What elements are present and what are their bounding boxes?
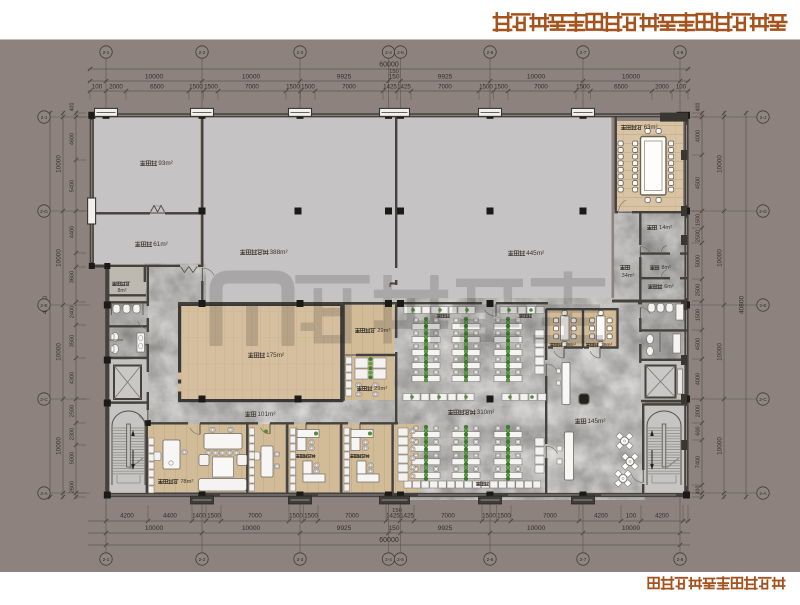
svg-text:2-1: 2-1 bbox=[103, 557, 110, 562]
svg-text:10000: 10000 bbox=[527, 525, 546, 532]
svg-text:2-J: 2-J bbox=[41, 115, 47, 120]
svg-text:10000: 10000 bbox=[242, 74, 261, 81]
svg-text:10000: 10000 bbox=[717, 437, 724, 455]
svg-text:2-E: 2-E bbox=[759, 303, 766, 308]
svg-text:3500: 3500 bbox=[70, 335, 76, 347]
svg-text:100: 100 bbox=[626, 513, 637, 520]
svg-text:7000: 7000 bbox=[345, 513, 359, 520]
svg-text:10000: 10000 bbox=[242, 525, 261, 532]
svg-text:4000: 4000 bbox=[696, 130, 702, 142]
svg-text:1500: 1500 bbox=[301, 84, 315, 91]
svg-text:1500: 1500 bbox=[207, 513, 221, 520]
svg-text:2-2: 2-2 bbox=[199, 50, 206, 55]
svg-text:2-7: 2-7 bbox=[580, 557, 587, 562]
svg-text:4400: 4400 bbox=[163, 513, 177, 520]
svg-text:10000: 10000 bbox=[717, 343, 724, 361]
svg-text:5000: 5000 bbox=[696, 255, 702, 267]
svg-text:63m²: 63m² bbox=[644, 125, 658, 131]
svg-text:2-C: 2-C bbox=[759, 397, 767, 402]
svg-text:5000: 5000 bbox=[70, 452, 76, 464]
svg-text:60000: 60000 bbox=[379, 537, 399, 544]
svg-text:7000: 7000 bbox=[438, 84, 452, 91]
svg-text:2-3: 2-3 bbox=[297, 557, 304, 562]
svg-text:40800: 40800 bbox=[739, 296, 746, 315]
svg-text:93m²: 93m² bbox=[158, 160, 173, 167]
svg-text:18m²: 18m² bbox=[565, 342, 576, 348]
svg-text:145m²: 145m² bbox=[587, 418, 605, 425]
svg-text:445m²: 445m² bbox=[526, 250, 544, 257]
svg-text:2-5: 2-5 bbox=[397, 557, 404, 562]
svg-text:9925: 9925 bbox=[438, 74, 453, 81]
svg-text:1500: 1500 bbox=[204, 84, 218, 91]
svg-text:7000: 7000 bbox=[543, 513, 557, 520]
svg-text:1500: 1500 bbox=[696, 309, 702, 321]
svg-text:7000: 7000 bbox=[534, 84, 548, 91]
svg-text:2-A: 2-A bbox=[40, 491, 48, 496]
svg-text:2-4: 2-4 bbox=[385, 50, 392, 55]
svg-text:1500: 1500 bbox=[497, 513, 511, 520]
svg-text:388m²: 388m² bbox=[269, 249, 287, 256]
svg-text:2-3: 2-3 bbox=[297, 50, 304, 55]
svg-text:2500: 2500 bbox=[696, 230, 702, 242]
svg-text:2-4: 2-4 bbox=[385, 557, 392, 562]
svg-text:1500: 1500 bbox=[479, 84, 493, 91]
svg-text:60000: 60000 bbox=[379, 62, 399, 69]
svg-text:6500: 6500 bbox=[150, 84, 164, 91]
svg-text:2-J: 2-J bbox=[760, 115, 766, 120]
svg-text:2-1: 2-1 bbox=[103, 50, 110, 55]
svg-text:2500: 2500 bbox=[70, 405, 76, 417]
svg-text:18m²: 18m² bbox=[601, 342, 612, 348]
svg-text:7400: 7400 bbox=[696, 456, 702, 468]
svg-text:600: 600 bbox=[696, 426, 702, 435]
svg-text:1500: 1500 bbox=[696, 214, 702, 226]
svg-text:150: 150 bbox=[388, 525, 399, 532]
svg-text:400: 400 bbox=[696, 103, 702, 112]
svg-text:2-5: 2-5 bbox=[397, 50, 404, 55]
svg-text:34m²: 34m² bbox=[622, 273, 635, 279]
svg-text:150: 150 bbox=[389, 69, 399, 75]
svg-text:10000: 10000 bbox=[56, 249, 63, 267]
svg-text:78m²: 78m² bbox=[180, 479, 193, 485]
svg-text:1425: 1425 bbox=[397, 84, 411, 91]
svg-text:10000: 10000 bbox=[145, 525, 164, 532]
svg-text:8m²: 8m² bbox=[662, 265, 671, 271]
svg-text:1500: 1500 bbox=[576, 84, 590, 91]
svg-text:6500: 6500 bbox=[614, 84, 628, 91]
svg-text:2-G: 2-G bbox=[40, 209, 48, 214]
svg-text:2600: 2600 bbox=[70, 481, 76, 493]
svg-text:101m²: 101m² bbox=[257, 411, 275, 418]
svg-text:1425: 1425 bbox=[400, 513, 414, 520]
svg-text:6m²: 6m² bbox=[664, 284, 673, 290]
svg-text:7000: 7000 bbox=[248, 513, 262, 520]
svg-text:4200: 4200 bbox=[594, 513, 608, 520]
svg-text:4400: 4400 bbox=[70, 226, 76, 238]
svg-text:14m²: 14m² bbox=[659, 225, 672, 231]
svg-text:2000: 2000 bbox=[655, 84, 669, 91]
svg-text:2-6: 2-6 bbox=[487, 557, 494, 562]
svg-text:2-7: 2-7 bbox=[580, 50, 587, 55]
svg-text:7000: 7000 bbox=[441, 513, 455, 520]
svg-text:10000: 10000 bbox=[56, 437, 63, 455]
svg-text:1500: 1500 bbox=[494, 84, 508, 91]
svg-text:4300: 4300 bbox=[70, 372, 76, 384]
svg-text:10000: 10000 bbox=[56, 343, 63, 361]
svg-text:2000: 2000 bbox=[696, 405, 702, 417]
svg-text:4200: 4200 bbox=[655, 513, 669, 520]
svg-text:2-E: 2-E bbox=[40, 303, 47, 308]
svg-text:10000: 10000 bbox=[717, 155, 724, 173]
svg-text:2-8: 2-8 bbox=[677, 557, 684, 562]
svg-text:9925: 9925 bbox=[438, 525, 453, 532]
svg-text:1500: 1500 bbox=[286, 84, 300, 91]
svg-text:10000: 10000 bbox=[622, 74, 641, 81]
svg-text:29m²: 29m² bbox=[377, 328, 390, 334]
svg-text:1500: 1500 bbox=[304, 513, 318, 520]
svg-text:2-G: 2-G bbox=[759, 209, 767, 214]
svg-text:2500: 2500 bbox=[696, 284, 702, 296]
svg-text:2-2: 2-2 bbox=[199, 557, 206, 562]
svg-text:10000: 10000 bbox=[622, 525, 641, 532]
svg-text:1500: 1500 bbox=[482, 513, 496, 520]
svg-text:1425: 1425 bbox=[383, 84, 397, 91]
svg-text:61m²: 61m² bbox=[153, 241, 168, 248]
svg-text:2000: 2000 bbox=[109, 84, 123, 91]
svg-text:10000: 10000 bbox=[56, 155, 63, 173]
svg-text:5400: 5400 bbox=[70, 180, 76, 192]
svg-text:4500: 4500 bbox=[696, 338, 702, 350]
svg-text:10000: 10000 bbox=[145, 74, 164, 81]
svg-text:10000: 10000 bbox=[527, 74, 546, 81]
svg-text:2-C: 2-C bbox=[40, 397, 48, 402]
svg-text:9925: 9925 bbox=[337, 525, 352, 532]
svg-text:2-A: 2-A bbox=[759, 491, 767, 496]
svg-text:10000: 10000 bbox=[717, 249, 724, 267]
svg-text:2-6: 2-6 bbox=[487, 50, 494, 55]
svg-text:3600: 3600 bbox=[70, 271, 76, 283]
svg-text:2400: 2400 bbox=[70, 306, 76, 318]
svg-text:175m²: 175m² bbox=[266, 352, 284, 359]
svg-text:8m²: 8m² bbox=[118, 288, 127, 294]
svg-text:4500: 4500 bbox=[696, 177, 702, 189]
svg-text:2300: 2300 bbox=[70, 428, 76, 440]
svg-text:1400: 1400 bbox=[192, 513, 206, 520]
svg-text:4200: 4200 bbox=[120, 513, 134, 520]
svg-text:310m²: 310m² bbox=[477, 409, 495, 416]
svg-text:1500: 1500 bbox=[189, 84, 203, 91]
svg-text:2-8: 2-8 bbox=[677, 50, 684, 55]
svg-text:9925: 9925 bbox=[337, 74, 352, 81]
svg-text:4000: 4000 bbox=[696, 373, 702, 385]
svg-text:100: 100 bbox=[92, 84, 103, 91]
svg-text:1500: 1500 bbox=[289, 513, 303, 520]
svg-text:400: 400 bbox=[70, 103, 76, 112]
svg-text:100: 100 bbox=[676, 84, 687, 91]
svg-text:29m²: 29m² bbox=[374, 386, 387, 392]
svg-text:7000: 7000 bbox=[245, 84, 259, 91]
svg-text:7000: 7000 bbox=[342, 84, 356, 91]
svg-text:4600: 4600 bbox=[70, 133, 76, 145]
